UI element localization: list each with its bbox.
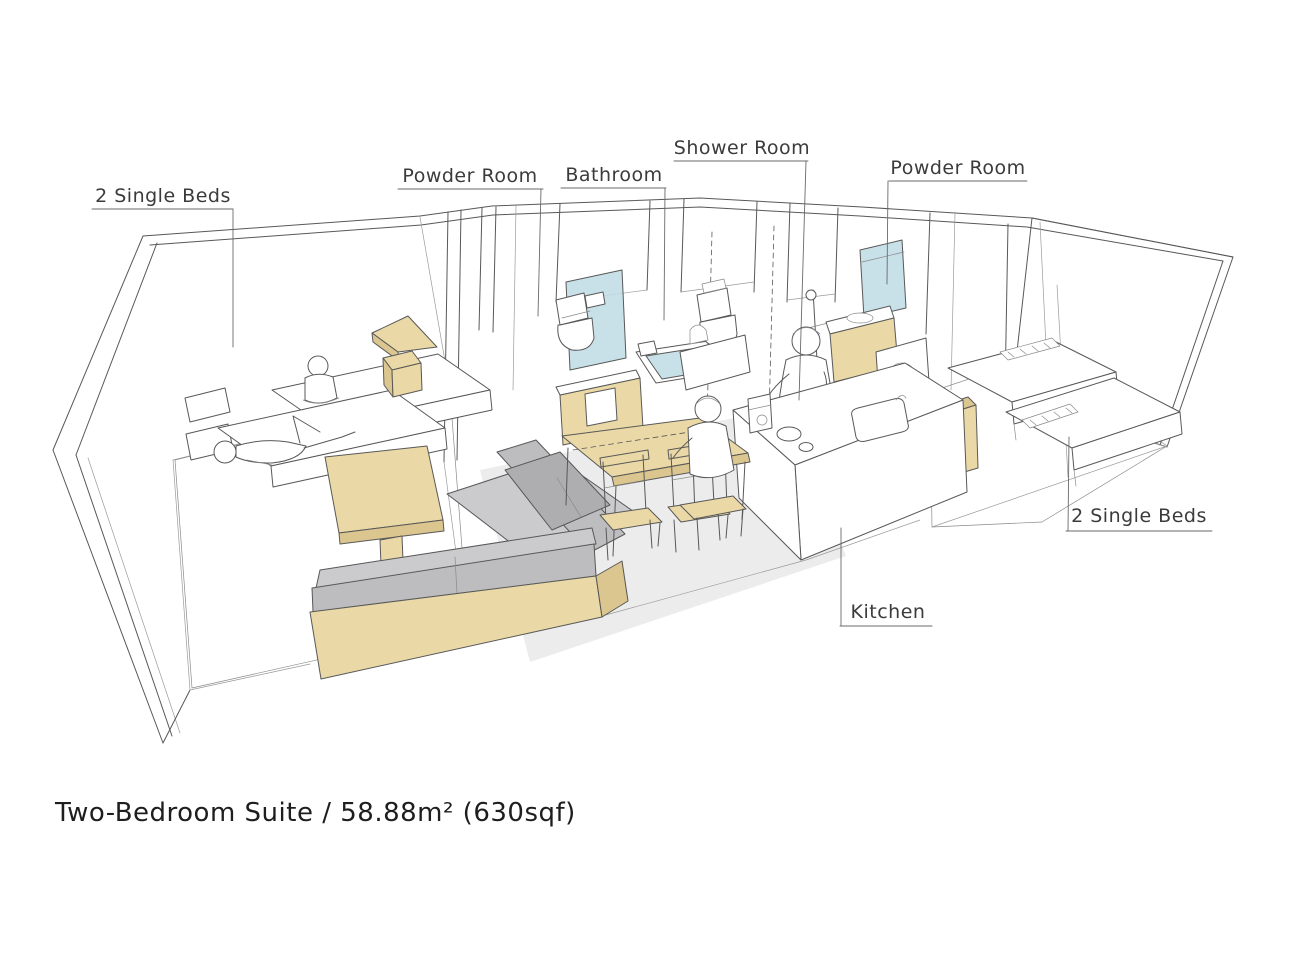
child-sitting: [303, 356, 339, 403]
label-beds-left: 2 Single Beds: [92, 185, 233, 347]
label-powder-right: Powder Room: [887, 157, 1027, 284]
vanity-sink: [847, 313, 873, 323]
person-head: [695, 396, 721, 422]
bowl: [777, 427, 801, 441]
bathtub-faucet-deck: [638, 341, 657, 356]
person-body: [688, 422, 734, 478]
label-text: 2 Single Beds: [95, 185, 231, 207]
plan-title: Two-Bedroom Suite / 58.88m² (630sqf): [55, 798, 576, 828]
bedside-panel: [185, 388, 230, 422]
pedestal-table-top: [325, 446, 443, 533]
floor-plan-illustration: 2 Single Beds Powder Room Bathroom Showe…: [0, 0, 1300, 975]
label-text: 2 Single Beds: [1071, 505, 1207, 527]
suite-isometric-drawing: 2 Single Beds Powder Room Bathroom Showe…: [0, 0, 1300, 975]
label-text: Kitchen: [851, 601, 926, 623]
label-text: Powder Room: [890, 157, 1025, 179]
wall-top-inner-edge: [150, 207, 1223, 261]
powder-room-left: [556, 270, 626, 370]
label-text: Powder Room: [402, 165, 537, 187]
label-text: Shower Room: [674, 137, 810, 159]
child-head: [308, 356, 328, 376]
cup: [799, 443, 813, 452]
person-head: [214, 441, 236, 463]
child-body: [305, 374, 337, 403]
coffee-maker: [748, 394, 772, 433]
towel: [585, 388, 617, 426]
label-text: Bathroom: [565, 164, 662, 186]
label-powder-left: Powder Room: [398, 165, 543, 316]
wall-top-outer-edge: [143, 198, 1233, 257]
label-kitchen: Kitchen: [840, 528, 932, 626]
mirror: [860, 240, 906, 318]
